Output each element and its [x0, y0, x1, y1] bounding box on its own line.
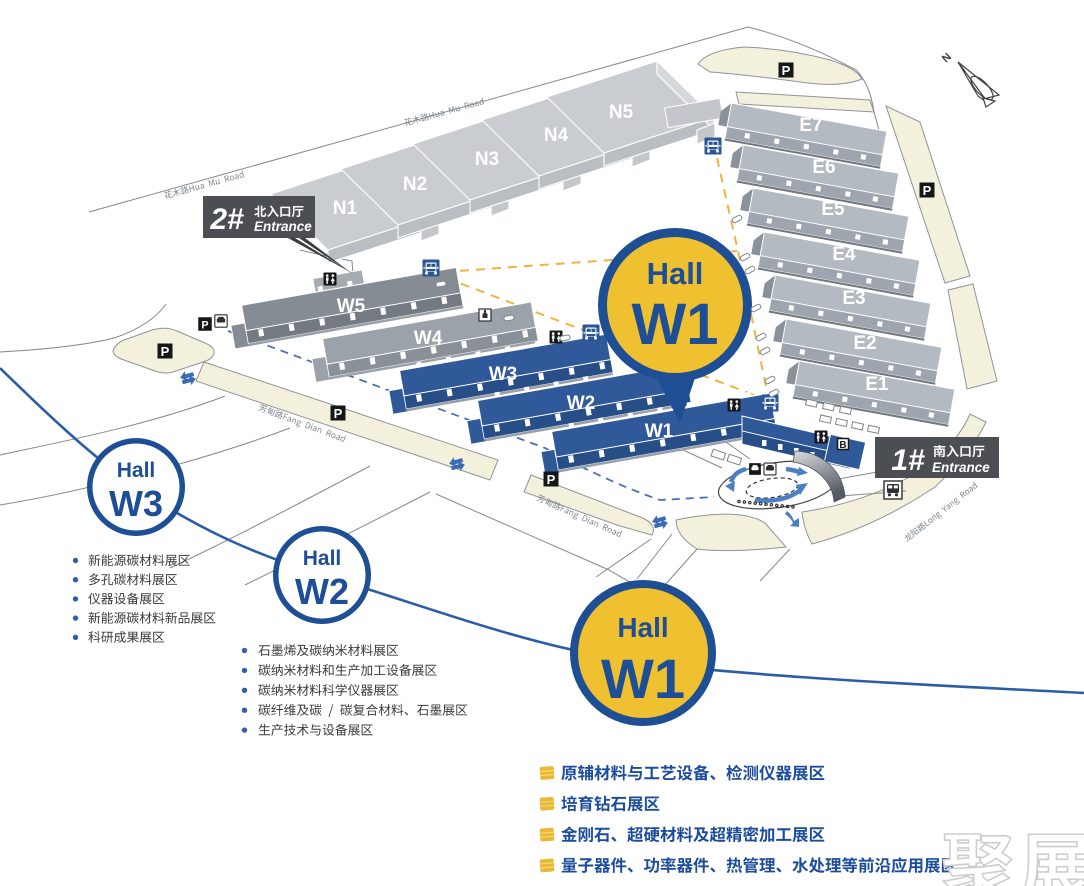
svg-text:Hall: Hall — [303, 547, 342, 570]
svg-text:2#: 2# — [209, 203, 244, 236]
svg-text:W1: W1 — [601, 647, 685, 710]
svg-text:W5: W5 — [337, 296, 366, 317]
svg-text:E6: E6 — [812, 157, 835, 178]
svg-text:Entrance: Entrance — [254, 219, 312, 234]
svg-text:B: B — [839, 440, 846, 451]
svg-text:N1: N1 — [333, 198, 358, 219]
svg-text:Hall: Hall — [647, 256, 704, 291]
svg-text:W1: W1 — [632, 292, 719, 357]
svg-text:E3: E3 — [842, 288, 865, 309]
svg-text:E5: E5 — [821, 199, 845, 220]
svg-text:W2: W2 — [295, 571, 349, 612]
svg-text:W3: W3 — [489, 364, 518, 385]
svg-text:P: P — [201, 320, 208, 332]
svg-text:E4: E4 — [832, 244, 856, 265]
svg-text:E2: E2 — [853, 333, 876, 354]
svg-text:N2: N2 — [403, 174, 427, 195]
svg-text:N5: N5 — [609, 102, 634, 123]
svg-text:W1: W1 — [645, 421, 674, 442]
svg-text:N3: N3 — [475, 149, 499, 170]
svg-text:E1: E1 — [865, 374, 889, 395]
svg-text:Hall: Hall — [617, 612, 668, 643]
svg-text:E7: E7 — [799, 115, 822, 136]
svg-text:W2: W2 — [567, 393, 596, 414]
svg-text:Hall: Hall — [117, 459, 156, 482]
svg-text:1#: 1# — [891, 444, 925, 477]
svg-text:W3: W3 — [109, 483, 163, 524]
svg-text:N4: N4 — [544, 125, 569, 146]
svg-text:Entrance: Entrance — [932, 460, 990, 475]
svg-text:W4: W4 — [414, 328, 443, 349]
